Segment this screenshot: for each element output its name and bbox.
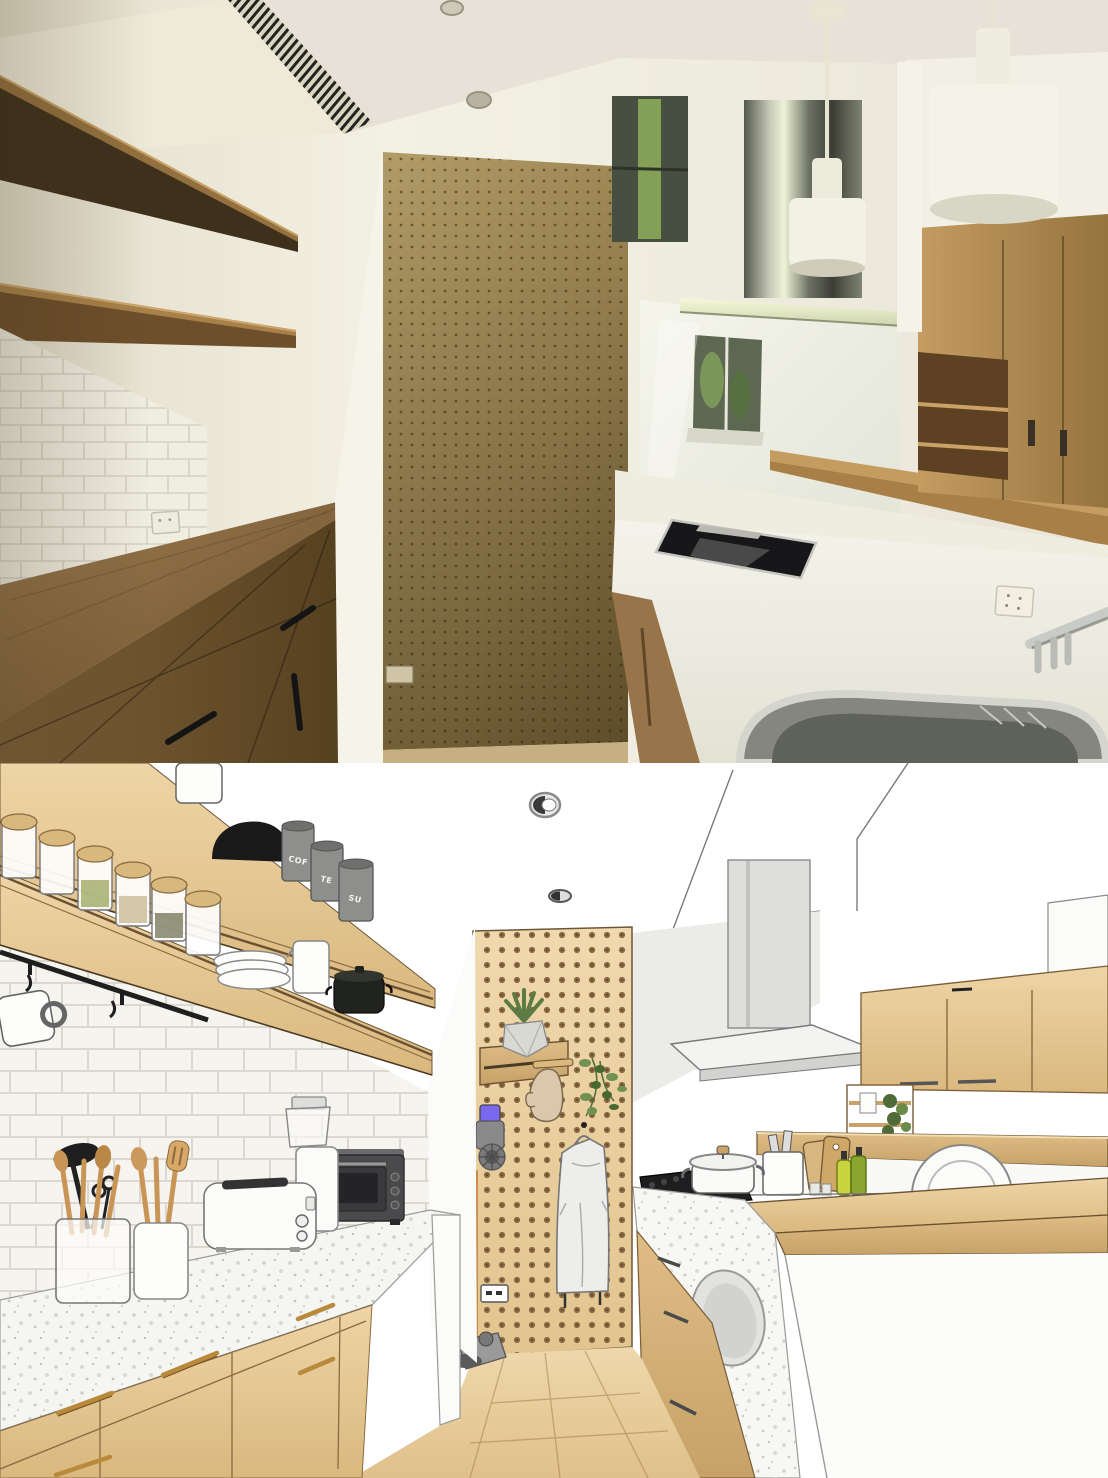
white-cabinet	[1048, 895, 1108, 977]
grinder-hopper	[286, 1107, 330, 1147]
cabinet-handle	[1060, 430, 1067, 456]
oven-window	[336, 1173, 378, 1203]
bulkhead-column	[897, 62, 922, 332]
vacuum-bin	[480, 1105, 500, 1123]
glass-jar	[151, 877, 187, 941]
canister-tea: TE	[311, 841, 343, 901]
render-outlet	[481, 1285, 508, 1302]
photo-panel	[0, 0, 1108, 763]
toaster-knob	[296, 1215, 308, 1227]
glass-jar	[77, 846, 113, 910]
vacuum-joint	[479, 1332, 493, 1346]
glass-jar	[39, 830, 75, 894]
kitchen-sink	[740, 694, 1106, 763]
render-panel: COF TE SU	[0, 763, 1108, 1478]
hood-chimney	[728, 860, 810, 1028]
toaster-lever	[306, 1197, 315, 1210]
outlet	[151, 511, 179, 534]
cabinet-handle	[1028, 420, 1035, 446]
recessed-light	[549, 890, 571, 902]
glass-holder	[56, 1219, 130, 1303]
outlet	[386, 666, 413, 683]
photo-window	[612, 96, 688, 242]
plate-stack	[214, 951, 290, 989]
bar-front	[785, 1253, 1108, 1478]
comparison-image: COF TE SU	[0, 0, 1108, 1478]
recessed-light	[467, 92, 491, 108]
open-niche	[918, 352, 1008, 480]
outlet	[995, 586, 1034, 618]
render-toaster	[204, 1177, 316, 1252]
recessed-light	[530, 793, 560, 817]
photo-pegboard	[383, 152, 628, 763]
recessed-light	[441, 1, 463, 15]
canister-coffee: COF	[282, 821, 314, 881]
cabinet-vent	[952, 989, 972, 990]
vignette	[0, 0, 150, 763]
canister-sugar: SU	[339, 859, 373, 921]
glass-jar	[185, 891, 221, 955]
hook	[581, 1122, 587, 1128]
vase	[860, 1093, 876, 1113]
ceramic-crock	[134, 1223, 188, 1299]
pot-lid-knob	[717, 1146, 729, 1154]
glass-jar	[1, 814, 37, 878]
glass-jar	[115, 862, 151, 926]
white-jar	[176, 763, 222, 803]
jar-contents	[155, 913, 183, 938]
toaster-knob	[297, 1231, 307, 1241]
spice-jars	[810, 1183, 831, 1195]
jar-contents	[119, 896, 147, 923]
render-open-shelf	[847, 1085, 913, 1141]
jar-contents	[81, 880, 109, 907]
white-jug	[287, 941, 329, 993]
